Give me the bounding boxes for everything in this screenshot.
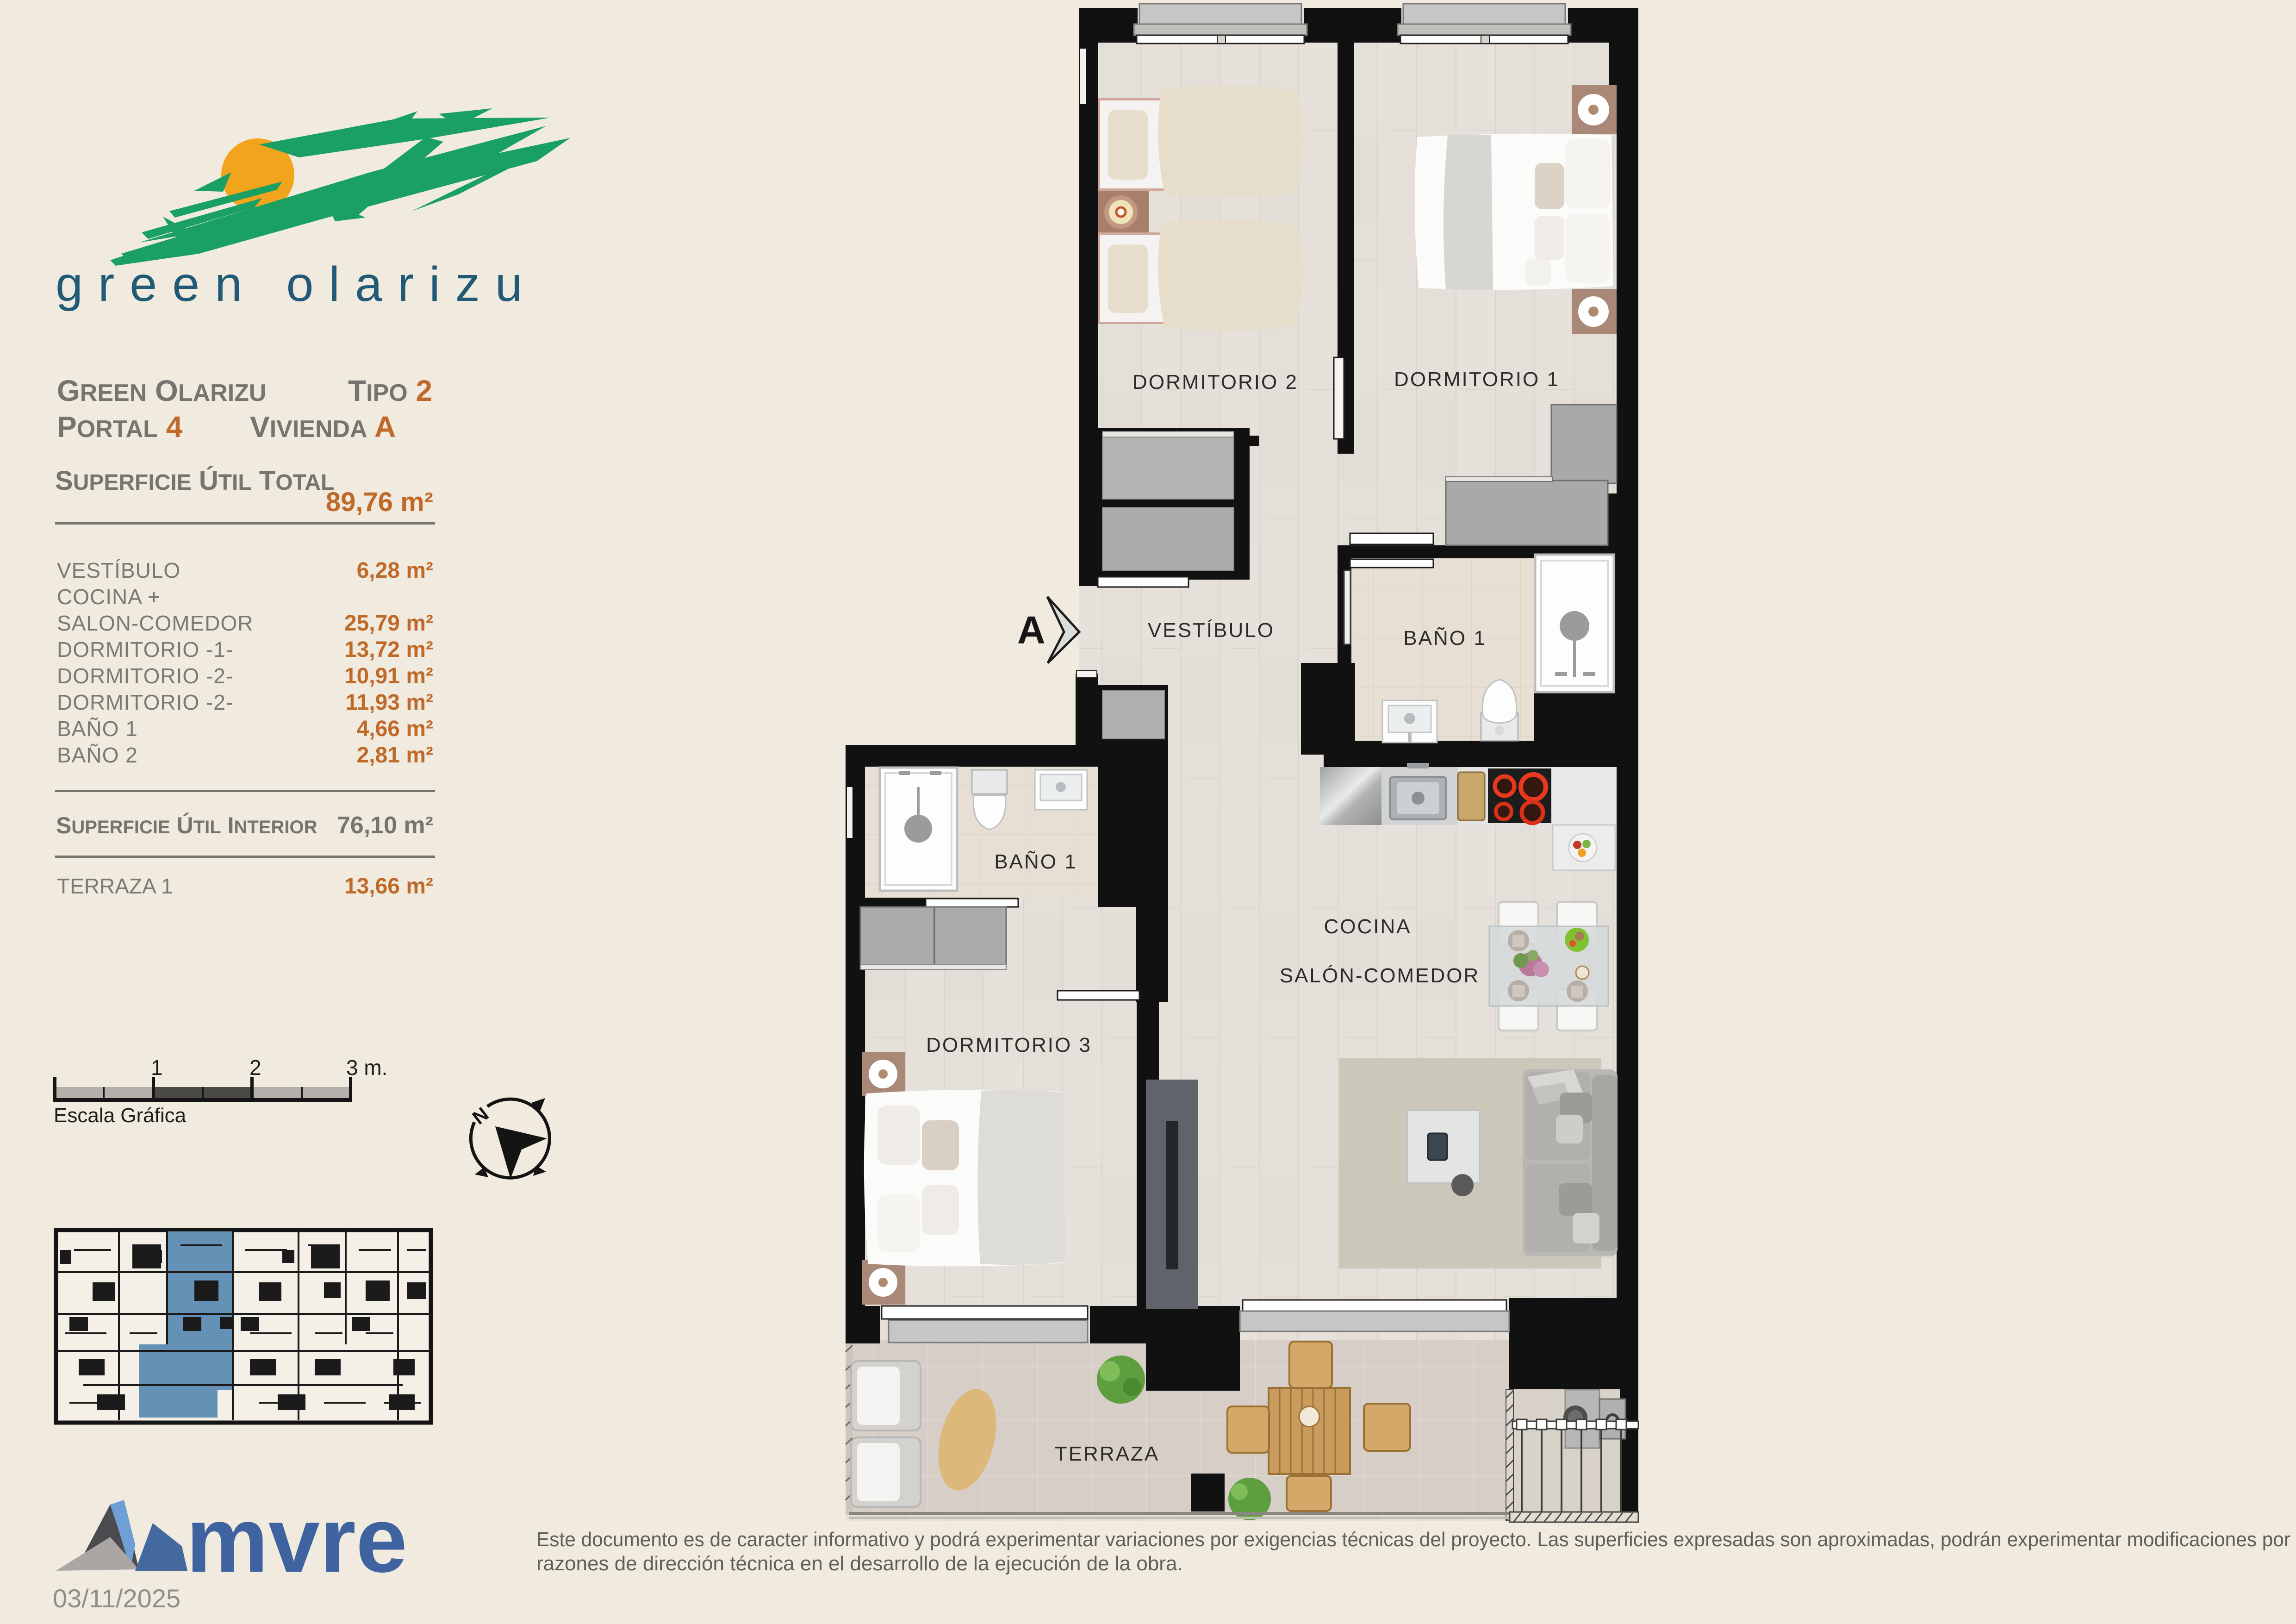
- svg-text:3 m.: 3 m.: [346, 1056, 387, 1080]
- svg-text:Escala Gráfica: Escala Gráfica: [54, 1104, 187, 1127]
- svg-text:11,93 m²: 11,93 m²: [346, 690, 433, 715]
- svg-text:green olarizu: green olarizu: [56, 257, 538, 312]
- svg-text:SALÓN-COMEDOR: SALÓN-COMEDOR: [1280, 964, 1480, 987]
- svg-text:BAÑO 1: BAÑO 1: [994, 850, 1077, 873]
- svg-text:DORMITORIO 1: DORMITORIO 1: [1394, 368, 1560, 391]
- svg-text:TERRAZA 1: TERRAZA 1: [57, 874, 173, 898]
- svg-text:DORMITORIO -2-: DORMITORIO -2-: [57, 690, 233, 714]
- svg-text:BAÑO 2: BAÑO 2: [57, 743, 138, 767]
- svg-text:03/11/2025: 03/11/2025: [53, 1584, 180, 1613]
- svg-text:6,28 m²: 6,28 m²: [357, 558, 433, 583]
- svg-text:SUPERFICIE ÚTIL TOTAL: SUPERFICIE ÚTIL TOTAL: [55, 466, 334, 496]
- svg-text:25,79 m²: 25,79 m²: [344, 611, 433, 636]
- svg-text:13,72 m²: 13,72 m²: [344, 637, 433, 662]
- svg-text:VESTÍBULO: VESTÍBULO: [57, 558, 180, 582]
- svg-text:COCINA +: COCINA +: [57, 585, 161, 609]
- svg-text:2: 2: [249, 1056, 261, 1080]
- svg-text:COCINA: COCINA: [1324, 915, 1411, 938]
- svg-text:BAÑO 1: BAÑO 1: [57, 717, 138, 741]
- svg-text:A: A: [1017, 608, 1045, 652]
- svg-text:1: 1: [151, 1056, 163, 1080]
- svg-text:DORMITORIO -1-: DORMITORIO -1-: [57, 637, 233, 662]
- svg-text:DORMITORIO -2-: DORMITORIO -2-: [57, 664, 233, 688]
- svg-text:BAÑO 1: BAÑO 1: [1403, 626, 1486, 650]
- svg-text:Este documento es de caracter: Este documento es de caracter informativ…: [536, 1528, 2290, 1551]
- svg-text:10,91 m²: 10,91 m²: [344, 664, 433, 688]
- svg-text:89,76 m²: 89,76 m²: [326, 487, 433, 517]
- svg-text:razones de dirección técnica e: razones de dirección técnica en el desar…: [536, 1552, 1183, 1575]
- svg-text:TERRAZA: TERRAZA: [1055, 1443, 1159, 1465]
- svg-text:SALON-COMEDOR: SALON-COMEDOR: [57, 611, 253, 635]
- svg-text:VESTÍBULO: VESTÍBULO: [1148, 619, 1275, 642]
- svg-text:4,66 m²: 4,66 m²: [357, 717, 433, 741]
- svg-text:DORMITORIO 3: DORMITORIO 3: [926, 1034, 1092, 1056]
- svg-text:13,66 m²: 13,66 m²: [344, 874, 433, 899]
- svg-text:mvre: mvre: [186, 1488, 407, 1592]
- svg-text:2,81 m²: 2,81 m²: [357, 743, 433, 768]
- svg-text:DORMITORIO 2: DORMITORIO 2: [1132, 371, 1298, 394]
